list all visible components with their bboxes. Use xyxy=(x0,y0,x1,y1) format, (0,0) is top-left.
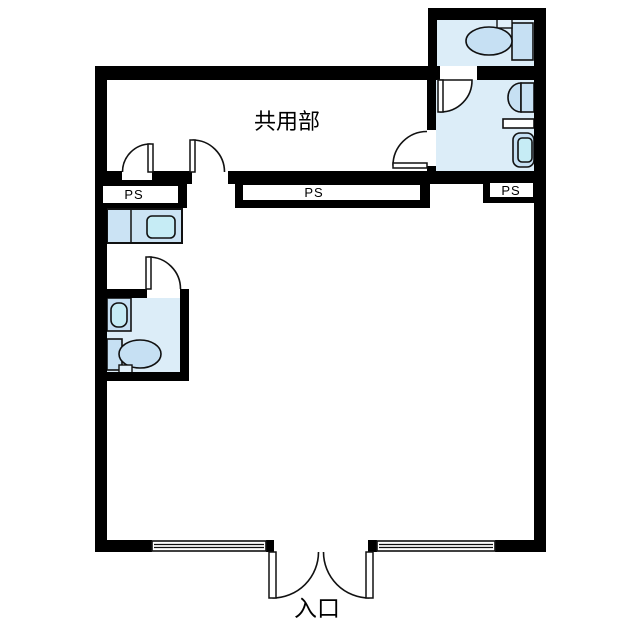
floor-plan: PS PS PS xyxy=(0,0,640,640)
entrance-post-left xyxy=(266,540,274,552)
wall-top-left xyxy=(95,66,440,80)
wall-toilet-left xyxy=(428,8,437,80)
wall-bathroom-left-lower xyxy=(427,166,436,172)
kitchen-sink-icon xyxy=(147,216,175,238)
rooms xyxy=(107,20,534,540)
door-leaf-corridor-right xyxy=(190,140,195,172)
shelf-icon xyxy=(503,119,534,128)
wall-toilet-top xyxy=(428,8,546,20)
washbasin-cabinet-icon xyxy=(521,83,534,112)
wall-bottom-right xyxy=(495,540,546,552)
wall-washroom-top xyxy=(95,289,147,298)
door-leaf-corridor-left xyxy=(148,144,153,172)
door-arc-entrance-right xyxy=(324,552,370,598)
bathtub-inner-icon xyxy=(518,138,532,162)
wall-bottom-left xyxy=(95,540,152,552)
kitchen-fixtures xyxy=(107,209,182,243)
toilet-icon xyxy=(466,27,512,55)
wall-washroom-right xyxy=(180,289,189,381)
ps-right-label: PS xyxy=(501,183,520,198)
entrance-label: 入口 xyxy=(294,595,340,621)
wall-left xyxy=(95,66,107,552)
toilet-icon xyxy=(119,340,161,368)
door-leaf-entrance-right xyxy=(366,552,373,598)
door-leaf-toilet-room xyxy=(438,80,443,112)
ps-left-label: PS xyxy=(124,187,143,202)
vanity-sink-icon xyxy=(111,303,127,327)
flush-button-icon xyxy=(497,19,512,28)
toilet-tank-icon xyxy=(512,23,533,60)
entrance-post-right xyxy=(368,540,377,552)
door-arc-entrance-left xyxy=(273,552,319,598)
window-bottom-left xyxy=(152,541,266,551)
window-bottom-right xyxy=(377,541,495,551)
wall-washroom-bottom xyxy=(95,372,189,381)
ps-center-label: PS xyxy=(304,185,323,200)
wall-bathroom-left-upper xyxy=(427,80,436,130)
wall-right xyxy=(534,8,546,552)
floor-plan-drawing: PS PS PS xyxy=(0,0,640,640)
door-leaf-entrance-left xyxy=(269,552,276,598)
door-leaf-washroom xyxy=(146,257,151,289)
windows xyxy=(152,541,495,551)
ps-box-center-inner xyxy=(243,185,420,200)
common-area-label: 共用部 xyxy=(254,109,320,134)
door-leaf-bathroom-entry xyxy=(393,163,427,168)
